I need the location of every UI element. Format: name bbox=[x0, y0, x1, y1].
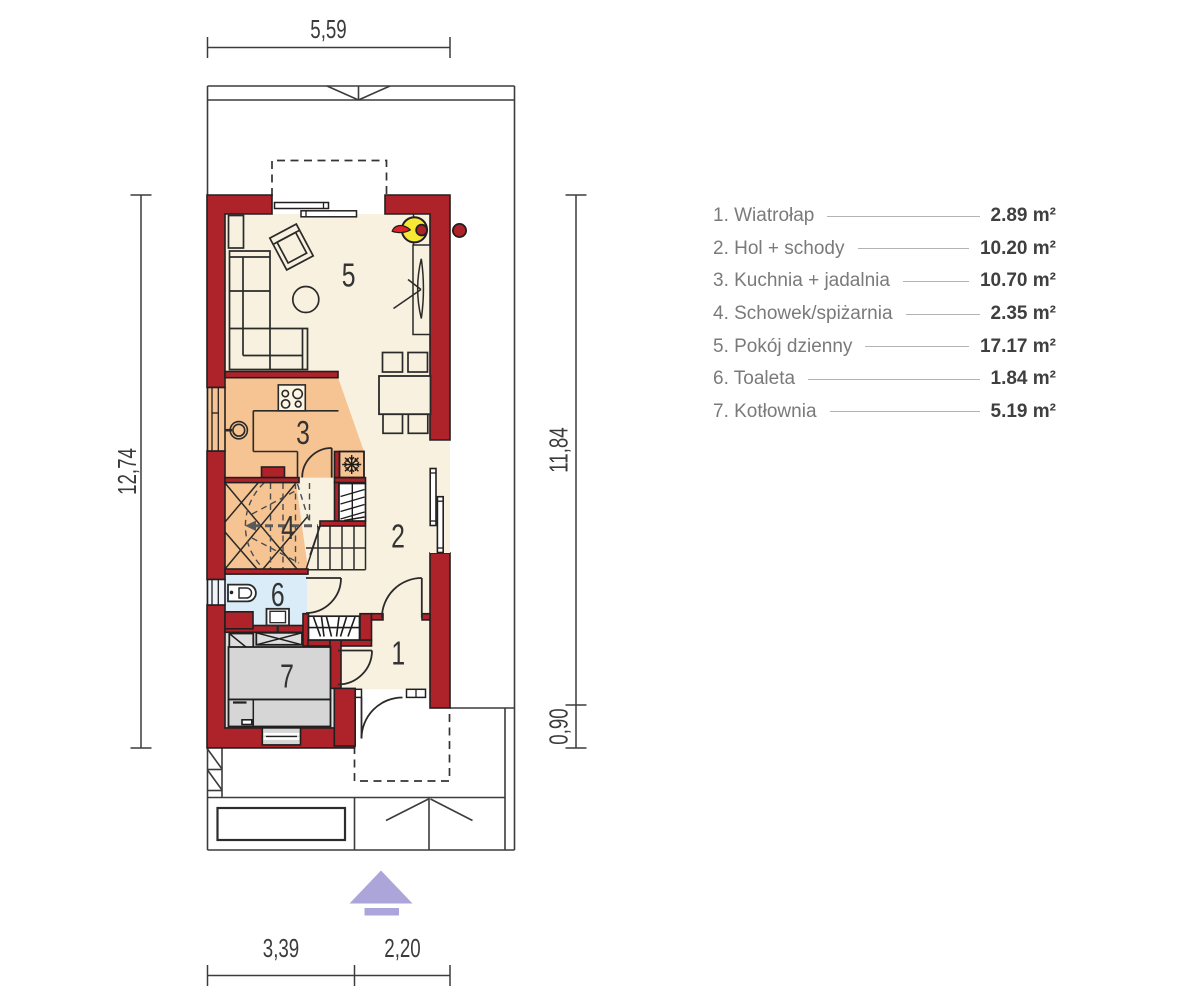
svg-text:2: 2 bbox=[391, 519, 405, 555]
svg-text:2,20: 2,20 bbox=[384, 933, 420, 963]
svg-text:12,74: 12,74 bbox=[112, 448, 142, 495]
svg-text:5: 5 bbox=[342, 258, 356, 294]
svg-text:4: 4 bbox=[281, 511, 295, 547]
svg-text:0,90: 0,90 bbox=[543, 708, 573, 744]
svg-text:11,84: 11,84 bbox=[543, 427, 573, 472]
svg-text:6: 6 bbox=[271, 578, 285, 614]
svg-text:3: 3 bbox=[296, 416, 310, 452]
svg-text:7: 7 bbox=[280, 659, 294, 695]
svg-text:5,59: 5,59 bbox=[310, 14, 346, 44]
svg-text:3,39: 3,39 bbox=[263, 933, 299, 963]
svg-text:1: 1 bbox=[391, 636, 405, 672]
